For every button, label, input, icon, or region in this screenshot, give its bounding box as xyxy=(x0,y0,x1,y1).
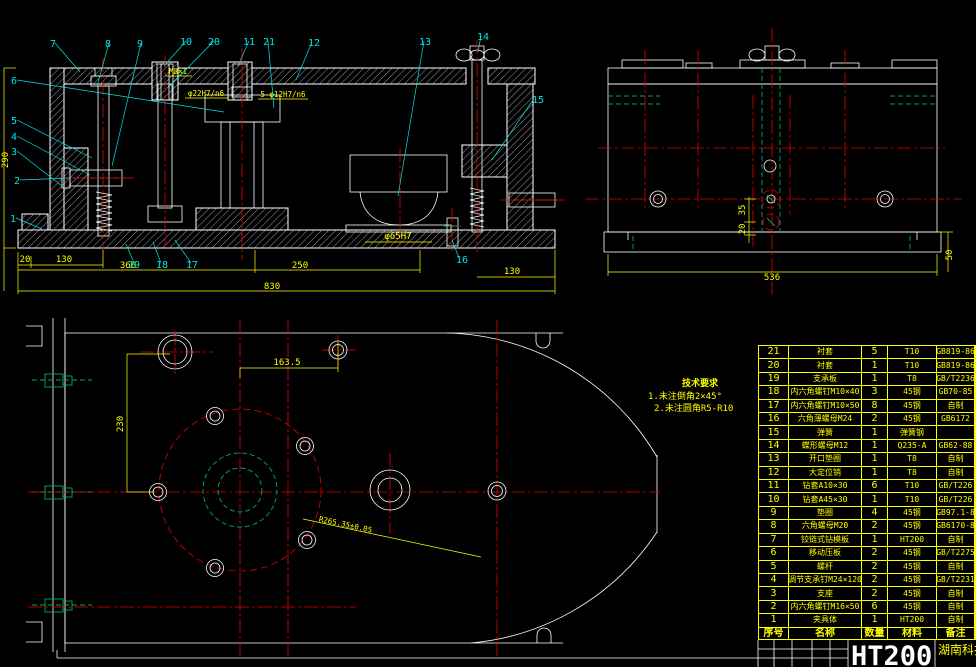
bom-cell-material: 45钢 xyxy=(888,520,937,533)
callout-4: 4 xyxy=(11,132,17,143)
bom-cell-material: 弹簧钢 xyxy=(888,426,937,439)
bom-cell-material: HT200 xyxy=(888,614,937,627)
bom-cell-material: T10 xyxy=(888,493,937,506)
bom-cell-no: 20 xyxy=(759,359,789,372)
bom-cell-note: GB97.1-8 xyxy=(937,507,975,520)
bom-cell-note: GB6170-8 xyxy=(937,520,975,533)
bom-header-cell: 材料 xyxy=(888,628,937,640)
bom-cell-note: 自制 xyxy=(937,467,975,480)
bom-cell-note: 自制 xyxy=(937,587,975,600)
bom-cell-no: 13 xyxy=(759,453,789,466)
bom-cell-note: 自制 xyxy=(937,614,975,627)
bom-cell-name: 衬套 xyxy=(789,346,862,359)
bom-cell-note: 自制 xyxy=(937,561,975,574)
dim-20: 20 xyxy=(20,255,31,265)
bom-cell-note: 自制 xyxy=(937,534,975,547)
tech-requirements: 技术要求 1.未注倒角2×45° 2.未注圆角R5-R10 xyxy=(648,377,733,414)
bom-cell-no: 8 xyxy=(759,520,789,533)
bom-cell-no: 19 xyxy=(759,373,789,386)
bore-label: φ65H7 xyxy=(384,232,411,242)
bom-cell-name: 夹具体 xyxy=(789,614,862,627)
bom-cell-material: T8 xyxy=(888,453,937,466)
bom-cell-material: 45钢 xyxy=(888,386,937,399)
bom-cell-material: Q235-A xyxy=(888,440,937,453)
bom-cell-note: GB/T2231 xyxy=(937,574,975,587)
tech-req-line1: 1.未注倒角2×45° xyxy=(648,390,722,402)
bom-cell-no: 21 xyxy=(759,346,789,359)
bom-header-cell: 备注 xyxy=(937,628,975,640)
bom-cell-qty: 1 xyxy=(862,440,888,453)
bom-cell-material: 45钢 xyxy=(888,507,937,520)
bushing-label-1: φ22H7/n6 xyxy=(188,89,225,98)
bom-cell-note: GB/T226 xyxy=(937,480,975,493)
bom-cell-no: 9 xyxy=(759,507,789,520)
bom-cell-no: 4 xyxy=(759,574,789,587)
side-dim-35: 35 xyxy=(738,205,748,216)
bom-cell-no: 18 xyxy=(759,386,789,399)
bushing-label-2: 5-φ12H7/n6 xyxy=(260,90,306,99)
side-dim-20: 20 xyxy=(738,224,748,235)
bom-cell-qty: 1 xyxy=(862,359,888,372)
bom-cell-qty: 2 xyxy=(862,520,888,533)
bom-cell-qty: 6 xyxy=(862,480,888,493)
dim-130-right: 130 xyxy=(504,267,520,277)
bom-cell-name: 螺杆 xyxy=(789,561,862,574)
bom-cell-note: GB819-86 xyxy=(937,346,975,359)
callout-14: 14 xyxy=(477,32,489,43)
plan-radius-label: R265.35±0.05 xyxy=(318,515,373,535)
bom-cell-note: GB/T2236 xyxy=(937,373,975,386)
bom-cell-qty: 4 xyxy=(862,507,888,520)
organization-name: 湖南科技大 xyxy=(938,642,976,657)
callout-12: 12 xyxy=(308,38,320,49)
bom-cell-material: 45钢 xyxy=(888,587,937,600)
title-block: HT200 湖南科技大 xyxy=(57,640,976,667)
bom-cell-qty: 1 xyxy=(862,614,888,627)
callout-11: 11 xyxy=(243,37,255,48)
bom-cell-name: 六角薄螺母M24 xyxy=(789,413,862,426)
bom-header-cell: 名称 xyxy=(789,628,862,640)
bom-cell-qty: 5 xyxy=(862,346,888,359)
bom-cell-qty: 2 xyxy=(862,561,888,574)
callout-20: 20 xyxy=(208,37,220,48)
bom-cell-material: 45钢 xyxy=(888,413,937,426)
drawing-sheet: 20 130 366 250 130 830 290 φ65H7 M8×1 φ2… xyxy=(0,0,976,667)
bom-cell-no: 16 xyxy=(759,413,789,426)
bom-cell-note: GB/T226 xyxy=(937,493,975,506)
bom-cell-qty: 2 xyxy=(862,574,888,587)
bom-cell-name: 移动压板 xyxy=(789,547,862,560)
bom-cell-qty: 2 xyxy=(862,413,888,426)
bom-cell-material: 45钢 xyxy=(888,561,937,574)
callout-6: 6 xyxy=(11,76,17,87)
side-dim-50: 50 xyxy=(945,250,955,261)
bom-cell-name: 铰链式钻模板 xyxy=(789,534,862,547)
bom-cell-name: 六角螺母M20 xyxy=(789,520,862,533)
callout-13: 13 xyxy=(419,37,431,48)
bom-cell-no: 7 xyxy=(759,534,789,547)
rail-studs xyxy=(32,374,92,612)
bom-cell-no: 11 xyxy=(759,480,789,493)
bom-cell-qty: 3 xyxy=(862,386,888,399)
bom-cell-note: 自制 xyxy=(937,601,975,614)
bom-cell-no: 6 xyxy=(759,547,789,560)
bom-cell-name: 内六角螺钉M16×50 xyxy=(789,601,862,614)
dim-height: 290 xyxy=(1,152,11,168)
bom-cell-no: 5 xyxy=(759,561,789,574)
bom-cell-name: 开口垫圈 xyxy=(789,453,862,466)
bom-cell-qty: 1 xyxy=(862,467,888,480)
plan-view: 163.5 230 R265.35±0.05 技术要求 1.未注倒角2×45° … xyxy=(26,318,733,658)
callout-7: 7 xyxy=(50,39,56,50)
bom-cell-qty: 1 xyxy=(862,373,888,386)
bom-cell-material: T10 xyxy=(888,359,937,372)
bom-cell-qty: 2 xyxy=(862,587,888,600)
dim-250: 250 xyxy=(292,261,308,271)
bom-table: 21衬套5T10GB819-8620衬套1T10GB819-8619支承板1T8… xyxy=(758,345,976,640)
bom-cell-qty: 6 xyxy=(862,601,888,614)
bom-cell-note: 自制 xyxy=(937,400,975,413)
bom-cell-name: 支座 xyxy=(789,587,862,600)
callout-17: 17 xyxy=(186,260,198,271)
bom-cell-name: 弹簧 xyxy=(789,426,862,439)
bom-cell-qty: 1 xyxy=(862,493,888,506)
callout-21: 21 xyxy=(263,37,275,48)
bom-cell-name: 蝶形螺母M12 xyxy=(789,440,862,453)
callout-5: 5 xyxy=(11,116,17,127)
bom-cell-qty: 8 xyxy=(862,400,888,413)
bom-cell-qty: 1 xyxy=(862,426,888,439)
bom-cell-no: 10 xyxy=(759,493,789,506)
section-view: 20 130 366 250 130 830 290 φ65H7 M8×1 φ2… xyxy=(1,32,565,294)
bom-header-cell: 序号 xyxy=(759,628,789,640)
bom-cell-name: 大定位销 xyxy=(789,467,862,480)
callout-9: 9 xyxy=(137,39,143,50)
bom-cell-qty: 2 xyxy=(862,547,888,560)
bom-header-cell: 数量 xyxy=(862,628,888,640)
plan-dim-163-5: 163.5 xyxy=(273,358,300,368)
bom-cell-note: 自制 xyxy=(937,453,975,466)
bom-cell-no: 12 xyxy=(759,467,789,480)
bom-cell-material: HT200 xyxy=(888,534,937,547)
bom-cell-no: 17 xyxy=(759,400,789,413)
bom-cell-material: 45钢 xyxy=(888,601,937,614)
callout-2: 2 xyxy=(14,176,20,187)
material-designation: HT200 xyxy=(851,641,932,667)
callout-1: 1 xyxy=(10,214,16,225)
bom-cell-material: T10 xyxy=(888,480,937,493)
callout-15: 15 xyxy=(532,95,544,106)
bom-cell-name: 钻套A45×30 xyxy=(789,493,862,506)
bom-cell-note: GB819-86 xyxy=(937,359,975,372)
callout-8: 8 xyxy=(105,39,111,50)
bom-cell-material: 45钢 xyxy=(888,574,937,587)
callout-19: 19 xyxy=(128,260,140,271)
bom-cell-material: T8 xyxy=(888,373,937,386)
bom-cell-material: T8 xyxy=(888,467,937,480)
bom-cell-no: 15 xyxy=(759,426,789,439)
callout-10: 10 xyxy=(180,37,192,48)
bom-cell-name: 钻套A10×30 xyxy=(789,480,862,493)
dim-130-left: 130 xyxy=(56,255,72,265)
plan-dim-230: 230 xyxy=(116,416,126,432)
bom-cell-name: 支承板 xyxy=(789,373,862,386)
bom-cell-name: 内六角螺钉M10×40 xyxy=(789,386,862,399)
dim-830: 830 xyxy=(264,282,280,292)
side-dim-536: 536 xyxy=(764,273,780,283)
side-view: 35 20 536 50 xyxy=(585,28,962,298)
bom-cell-note: GB70-85 xyxy=(937,386,975,399)
bom-cell-name: 衬套 xyxy=(789,359,862,372)
tech-req-title: 技术要求 xyxy=(682,377,719,389)
bom-cell-note: GB/T2275 xyxy=(937,547,975,560)
callout-18: 18 xyxy=(156,260,168,271)
tech-req-line2: 2.未注圆角R5-R10 xyxy=(654,402,733,414)
bom-cell-material: T10 xyxy=(888,346,937,359)
callout-16: 16 xyxy=(456,255,468,266)
bom-cell-qty: 1 xyxy=(862,453,888,466)
bom-cell-no: 2 xyxy=(759,601,789,614)
callout-3: 3 xyxy=(11,147,17,158)
bom-cell-no: 1 xyxy=(759,614,789,627)
bom-cell-name: 内六角螺钉M10×50 xyxy=(789,400,862,413)
bom-cell-note xyxy=(937,426,975,439)
bom-cell-name: 调节支承钉M24×120 xyxy=(789,574,862,587)
bom-cell-note: GB6172 xyxy=(937,413,975,426)
bom-cell-note: GB62-88 xyxy=(937,440,975,453)
bom-cell-material: 45钢 xyxy=(888,547,937,560)
bom-cell-name: 垫圈 xyxy=(789,507,862,520)
bom-cell-qty: 1 xyxy=(862,534,888,547)
bom-cell-no: 3 xyxy=(759,587,789,600)
bom-cell-material: 45钢 xyxy=(888,400,937,413)
bom-cell-no: 14 xyxy=(759,440,789,453)
